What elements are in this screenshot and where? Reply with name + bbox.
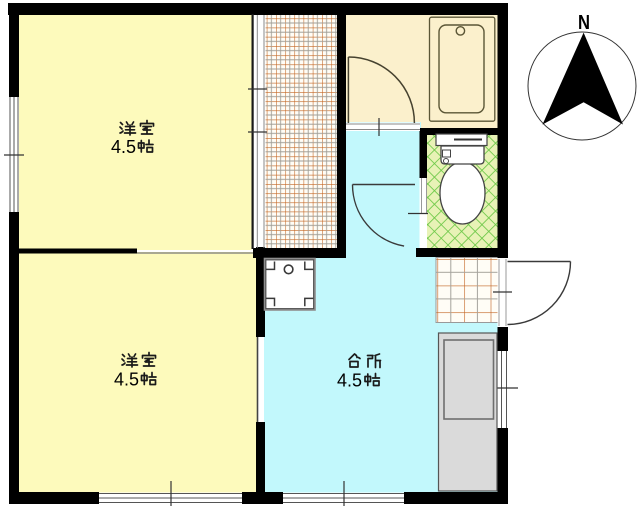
svg-text:4.5: 4.5 <box>337 371 362 391</box>
svg-text:N: N <box>578 12 590 34</box>
svg-text:4.5: 4.5 <box>111 137 136 157</box>
svg-text:4.5: 4.5 <box>114 370 139 390</box>
